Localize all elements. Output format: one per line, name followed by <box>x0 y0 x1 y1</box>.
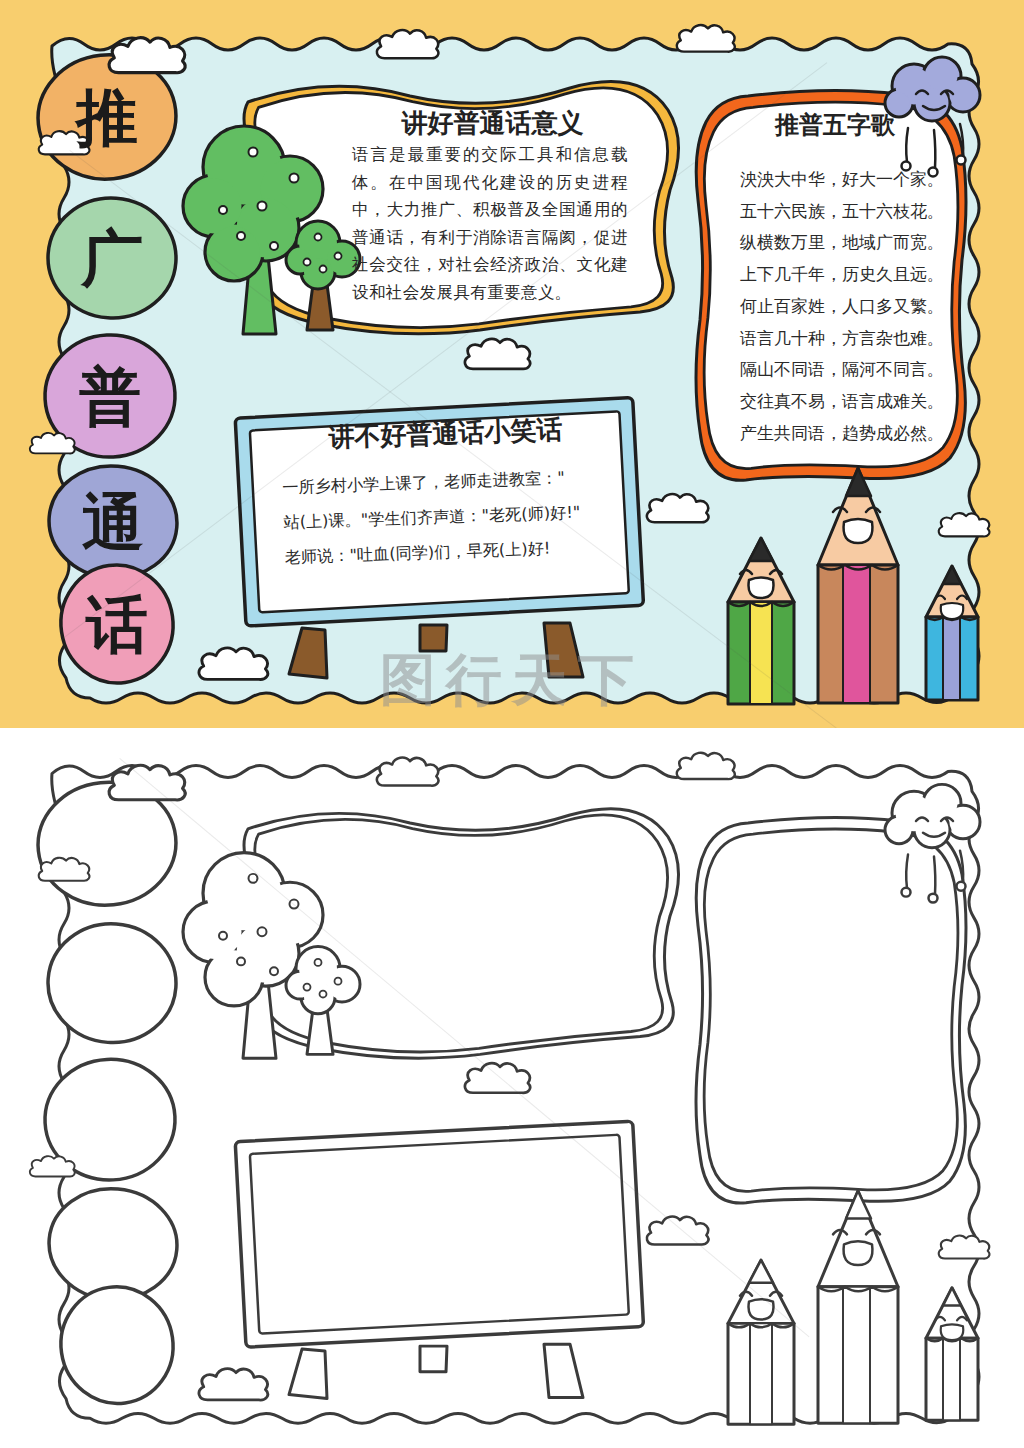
scene-colored-art <box>0 0 1024 728</box>
poster-colored: 推 广 普 通 话 讲好普通话意义 语言是最重要的交际工具和信息载体。在中国现代… <box>0 0 1024 728</box>
poster-page: 推 广 普 通 话 讲好普通话意义 语言是最重要的交际工具和信息载体。在中国现代… <box>0 0 1024 1448</box>
poster-lineart <box>0 728 1024 1448</box>
